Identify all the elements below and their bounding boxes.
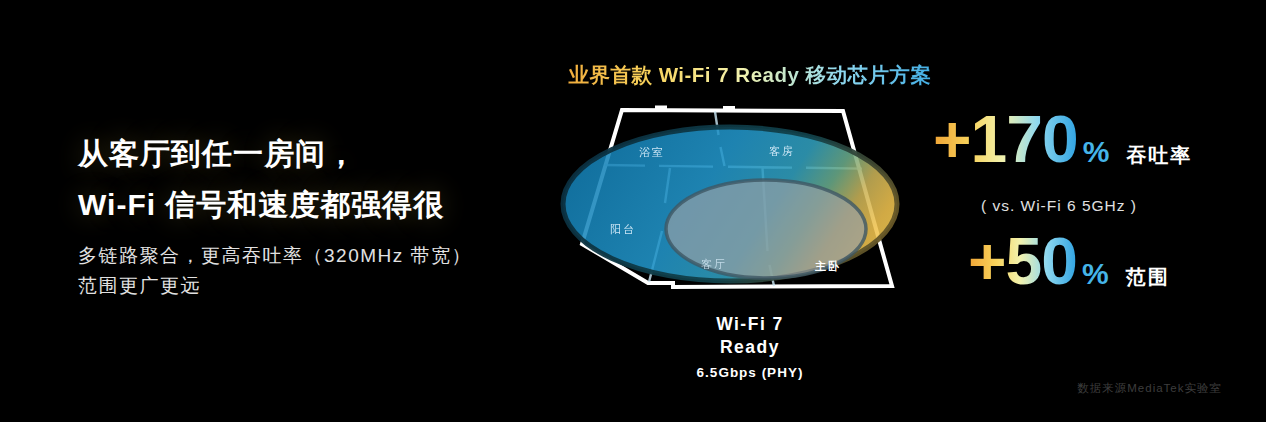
throughput-stat: +170 % 吞吐率 bbox=[933, 106, 1192, 172]
headline-line-2: Wi-Fi 信号和速度都强得很 bbox=[78, 179, 444, 230]
floorplan-coverage-diagram: 浴室 客房 阳台 客厅 主卧 bbox=[555, 93, 945, 303]
presentation-slide: 从客厅到任一房间， Wi-Fi 信号和速度都强得很 多链路聚合，更高吞吐率（32… bbox=[0, 0, 1266, 422]
room-label-livingroom: 客厅 bbox=[701, 258, 727, 270]
throughput-value: +170 bbox=[933, 106, 1078, 172]
comparison-note: ( vs. Wi-Fi 6 5GHz ) bbox=[933, 197, 1185, 215]
headline-line-1: 从客厅到任一房间， bbox=[78, 128, 444, 179]
headline: 从客厅到任一房间， Wi-Fi 信号和速度都强得很 bbox=[78, 128, 444, 230]
data-source-note: 数据来源MediaTek实验室 bbox=[1077, 381, 1222, 396]
caption-phy-rate: 6.5Gbps (PHY) bbox=[555, 365, 945, 380]
caption-line-2: Ready bbox=[555, 336, 945, 359]
range-value: +50 bbox=[968, 228, 1077, 294]
throughput-label: 吞吐率 bbox=[1126, 142, 1192, 169]
room-label-bathroom: 浴室 bbox=[639, 146, 665, 158]
range-stat: +50 % 范围 bbox=[968, 228, 1170, 294]
throughput-percent-sign: % bbox=[1083, 135, 1110, 169]
room-label-master-bedroom: 主卧 bbox=[815, 260, 841, 272]
subheadline-line-2: 范围更广更远 bbox=[78, 271, 472, 301]
chip-caption: Wi-Fi 7 Ready 6.5Gbps (PHY) bbox=[555, 313, 945, 380]
range-percent-sign: % bbox=[1082, 257, 1109, 291]
room-label-guestroom: 客房 bbox=[769, 145, 795, 157]
room-label-balcony: 阳台 bbox=[610, 223, 636, 235]
wall-tab bbox=[723, 106, 735, 111]
caption-line-1: Wi-Fi 7 bbox=[555, 313, 945, 336]
section-title: 业界首款 Wi-Fi 7 Ready 移动芯片方案 bbox=[545, 61, 955, 89]
wall-tab bbox=[655, 106, 667, 111]
subheadline: 多链路聚合，更高吞吐率（320MHz 带宽） 范围更广更远 bbox=[78, 241, 472, 300]
range-label: 范围 bbox=[1126, 264, 1170, 291]
subheadline-line-1: 多链路聚合，更高吞吐率（320MHz 带宽） bbox=[78, 241, 472, 271]
